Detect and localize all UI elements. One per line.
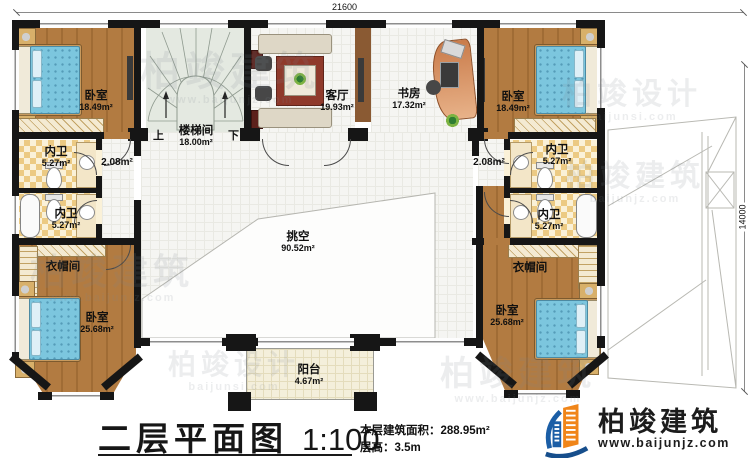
room-label-cloak-l: 衣帽间 bbox=[31, 261, 95, 274]
wall-segment bbox=[14, 188, 100, 193]
wall-segment bbox=[134, 20, 141, 134]
window bbox=[12, 50, 19, 110]
armchair bbox=[255, 86, 272, 101]
plan-stats: 本层建筑面积：288.95m² 层高：3.5m bbox=[360, 423, 490, 458]
room-label-bath-r2: 内卫 5.27m² bbox=[520, 209, 578, 232]
room-area: 19.93m² bbox=[308, 103, 366, 113]
monitor bbox=[440, 62, 459, 88]
window bbox=[396, 338, 464, 346]
room-name: 内卫 bbox=[38, 208, 94, 221]
room-area: 18.49m² bbox=[483, 104, 543, 114]
pillar bbox=[348, 128, 368, 141]
pillow bbox=[31, 330, 41, 356]
room-label-corridor-l: 2.08m² bbox=[94, 157, 140, 168]
brand-name: 柏竣建筑 bbox=[598, 409, 730, 436]
room-name: 内卫 bbox=[28, 146, 84, 159]
sofa bbox=[258, 34, 332, 54]
window bbox=[12, 296, 19, 352]
room-name: 衣帽间 bbox=[498, 262, 562, 275]
pillar bbox=[228, 392, 251, 411]
room-label-stairwell: 楼梯间 18.00m² bbox=[162, 125, 230, 148]
logo-icon bbox=[542, 400, 590, 458]
room-name: 卧室 bbox=[58, 90, 134, 103]
room-label-bedroom-br: 卧室 25.68m² bbox=[476, 305, 538, 328]
room-name: 卧室 bbox=[66, 312, 128, 325]
room-label-bath-l1: 内卫 5.27m² bbox=[28, 146, 84, 169]
armchair bbox=[255, 56, 272, 71]
logo-text-group: 柏竣建筑 www.baijunjz.com bbox=[598, 409, 730, 450]
pillow bbox=[574, 80, 584, 108]
titleblock: 二层平面图 1:100 bbox=[98, 412, 380, 460]
room-name: 卧室 bbox=[476, 305, 538, 318]
pillow bbox=[32, 50, 42, 78]
room-name: 客厅 bbox=[308, 90, 366, 103]
pillar bbox=[128, 128, 148, 141]
door-opening bbox=[484, 238, 510, 245]
window bbox=[268, 20, 326, 28]
floor-area-line: 本层建筑面积：288.95m² bbox=[360, 423, 490, 440]
room-label-corridor-r: 2.08m² bbox=[466, 157, 512, 168]
room-label-living: 客厅 19.93m² bbox=[308, 90, 366, 113]
room-area: 5.27m² bbox=[528, 157, 586, 167]
door-opening bbox=[484, 132, 508, 139]
void-opening-outline bbox=[134, 185, 480, 345]
stairs-up-label: 上 bbox=[153, 127, 164, 143]
window bbox=[160, 20, 228, 28]
pillow bbox=[31, 302, 41, 328]
room-name: 书房 bbox=[380, 88, 438, 101]
room-label-bath-r1: 内卫 5.27m² bbox=[528, 144, 586, 167]
brand-url: www.baijunjz.com bbox=[598, 436, 730, 450]
pillow bbox=[576, 330, 586, 354]
pillar bbox=[350, 334, 380, 351]
window bbox=[597, 286, 605, 336]
plant bbox=[294, 73, 306, 85]
window bbox=[40, 20, 108, 28]
room-name: 楼梯间 bbox=[162, 125, 230, 138]
plan-title: 二层平面图 bbox=[98, 412, 288, 460]
wall-segment bbox=[134, 200, 141, 348]
bathtub bbox=[20, 194, 40, 238]
room-area: 2.08m² bbox=[94, 157, 140, 168]
room-name: 内卫 bbox=[520, 209, 578, 222]
room-label-bedroom-tr: 卧室 18.49m² bbox=[483, 91, 543, 114]
plant bbox=[446, 114, 459, 127]
room-area: 18.49m² bbox=[58, 103, 134, 113]
pillar bbox=[354, 392, 377, 411]
closet bbox=[508, 243, 580, 258]
staircase bbox=[146, 26, 245, 132]
room-label-bedroom-tl: 卧室 18.49m² bbox=[58, 90, 134, 113]
room-name: 内卫 bbox=[528, 144, 586, 157]
room-area: 17.32m² bbox=[380, 101, 438, 111]
roof-outline bbox=[602, 110, 748, 398]
room-area: 5.27m² bbox=[28, 159, 84, 169]
room-name: 衣帽间 bbox=[31, 261, 95, 274]
room-label-balcony: 阳台 4.67m² bbox=[278, 364, 340, 387]
room-area: 25.68m² bbox=[66, 325, 128, 335]
pillar bbox=[240, 128, 260, 141]
pillow bbox=[32, 80, 42, 108]
room-label-void: 挑空 90.52m² bbox=[266, 231, 330, 254]
toilet bbox=[537, 167, 553, 190]
window bbox=[500, 20, 576, 28]
wall-segment bbox=[244, 20, 251, 132]
bathtub bbox=[576, 194, 597, 238]
room-area: 5.27m² bbox=[38, 221, 94, 231]
room-area: 2.08m² bbox=[466, 157, 512, 168]
room-area: 18.00m² bbox=[162, 138, 230, 148]
window bbox=[12, 196, 19, 234]
room-area: 5.27m² bbox=[520, 222, 578, 232]
room-label-bedroom-bl: 卧室 25.68m² bbox=[66, 312, 128, 335]
room-area: 4.67m² bbox=[278, 377, 340, 387]
room-label-study: 书房 17.32m² bbox=[380, 88, 438, 111]
toilet bbox=[46, 167, 62, 190]
floor-height-line: 层高：3.5m bbox=[360, 440, 490, 457]
window bbox=[150, 338, 222, 346]
room-label-cloak-r: 衣帽间 bbox=[498, 262, 562, 275]
nightstand bbox=[579, 283, 599, 299]
title-underline bbox=[98, 454, 352, 456]
wall-segment bbox=[477, 20, 484, 134]
stairs-down-label: 下 bbox=[228, 127, 239, 143]
dimension-width-label: 21600 bbox=[330, 2, 359, 12]
window bbox=[52, 392, 100, 400]
pillow bbox=[574, 50, 584, 78]
room-label-bath-l2: 内卫 5.27m² bbox=[38, 208, 94, 231]
dimension-height-label: 14000 bbox=[738, 202, 748, 231]
wall-segment bbox=[508, 188, 598, 193]
window bbox=[597, 48, 605, 108]
door-opening bbox=[104, 132, 130, 139]
balcony-door bbox=[258, 338, 354, 346]
wall-segment bbox=[12, 238, 141, 245]
room-area: 25.68m² bbox=[476, 318, 538, 328]
pillar bbox=[226, 334, 256, 351]
room-name: 阳台 bbox=[278, 364, 340, 377]
room-name: 挑空 bbox=[266, 231, 330, 244]
company-logo: 柏竣建筑 www.baijunjz.com bbox=[542, 400, 730, 458]
floorplan-page: { "dims": { "width": "21600", "height": … bbox=[0, 0, 750, 466]
window bbox=[518, 390, 566, 398]
room-name: 卧室 bbox=[483, 91, 543, 104]
room-area: 90.52m² bbox=[266, 244, 330, 254]
window bbox=[386, 20, 452, 28]
pillow bbox=[576, 304, 586, 328]
dimension-line-top bbox=[16, 12, 744, 13]
